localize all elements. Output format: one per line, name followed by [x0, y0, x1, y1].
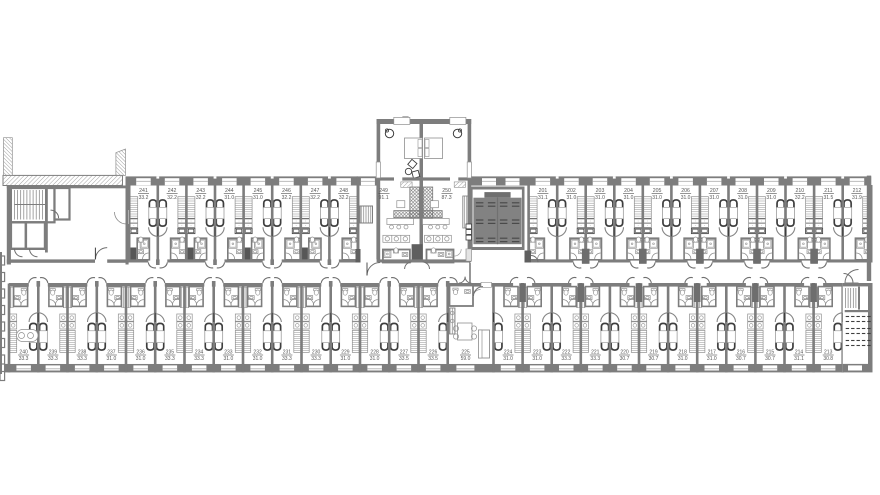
svg-text:91.1: 91.1: [379, 195, 389, 201]
svg-text:33.3: 33.3: [77, 356, 87, 362]
svg-text:222: 222: [562, 350, 571, 356]
svg-text:30.7: 30.7: [736, 356, 746, 362]
svg-text:31.0: 31.0: [652, 195, 662, 201]
svg-text:30.7: 30.7: [649, 356, 659, 362]
svg-text:210: 210: [795, 188, 804, 194]
svg-text:33.3: 33.3: [48, 356, 58, 362]
svg-text:234: 234: [195, 350, 204, 356]
svg-text:215: 215: [766, 350, 775, 356]
svg-text:33.3: 33.3: [19, 356, 29, 362]
svg-text:32.2: 32.2: [167, 195, 177, 201]
svg-text:217: 217: [708, 350, 717, 356]
svg-text:207: 207: [710, 188, 719, 194]
svg-text:31.0: 31.0: [624, 195, 634, 201]
svg-text:204: 204: [624, 188, 633, 194]
svg-text:203: 203: [596, 188, 605, 194]
svg-text:223: 223: [533, 350, 542, 356]
svg-text:232: 232: [253, 350, 262, 356]
svg-text:59.0: 59.0: [461, 356, 471, 362]
svg-text:209: 209: [767, 188, 776, 194]
svg-text:31.0: 31.0: [253, 195, 263, 201]
svg-text:238: 238: [78, 350, 87, 356]
svg-text:30.8: 30.8: [823, 356, 833, 362]
svg-text:31.0: 31.0: [341, 356, 351, 362]
svg-text:248: 248: [339, 188, 348, 194]
svg-text:31.0: 31.0: [707, 356, 717, 362]
svg-text:231: 231: [283, 350, 292, 356]
svg-text:32.2: 32.2: [282, 195, 292, 201]
svg-text:202: 202: [567, 188, 576, 194]
svg-text:30.7: 30.7: [765, 356, 775, 362]
svg-text:32.2: 32.2: [795, 195, 805, 201]
svg-text:31.0: 31.0: [567, 195, 577, 201]
svg-text:243: 243: [196, 188, 205, 194]
svg-text:31.0: 31.0: [136, 356, 146, 362]
svg-text:31.0: 31.0: [678, 356, 688, 362]
svg-text:201: 201: [539, 188, 548, 194]
svg-text:247: 247: [311, 188, 320, 194]
svg-text:229: 229: [341, 350, 350, 356]
svg-text:33.3: 33.3: [165, 356, 175, 362]
svg-text:31.0: 31.0: [766, 195, 776, 201]
svg-text:226: 226: [429, 350, 438, 356]
svg-text:208: 208: [738, 188, 747, 194]
svg-text:244: 244: [225, 188, 234, 194]
svg-text:206: 206: [681, 188, 690, 194]
svg-text:31.9: 31.9: [852, 195, 862, 201]
svg-text:218: 218: [679, 350, 688, 356]
svg-text:227: 227: [400, 350, 409, 356]
svg-text:216: 216: [737, 350, 746, 356]
svg-text:30.7: 30.7: [620, 356, 630, 362]
svg-text:212: 212: [853, 188, 862, 194]
svg-text:31.0: 31.0: [503, 356, 513, 362]
svg-text:31.0: 31.0: [107, 356, 117, 362]
svg-text:33.3: 33.3: [282, 356, 292, 362]
svg-text:235: 235: [166, 350, 175, 356]
svg-text:31.1: 31.1: [538, 195, 548, 201]
svg-text:228: 228: [370, 350, 379, 356]
svg-text:31.0: 31.0: [681, 195, 691, 201]
svg-text:205: 205: [653, 188, 662, 194]
svg-text:246: 246: [282, 188, 291, 194]
svg-text:33.3: 33.3: [311, 356, 321, 362]
svg-text:233: 233: [224, 350, 233, 356]
svg-text:214: 214: [795, 350, 804, 356]
svg-text:31.0: 31.0: [532, 356, 542, 362]
svg-text:240: 240: [19, 350, 28, 356]
svg-text:31.0: 31.0: [224, 195, 234, 201]
svg-text:245: 245: [254, 188, 263, 194]
svg-text:87.3: 87.3: [442, 195, 452, 201]
svg-text:31.0: 31.0: [738, 195, 748, 201]
svg-text:224: 224: [504, 350, 513, 356]
svg-text:236: 236: [136, 350, 145, 356]
svg-text:31.0: 31.0: [709, 195, 719, 201]
svg-text:31.1: 31.1: [794, 356, 804, 362]
svg-text:241: 241: [139, 188, 148, 194]
svg-text:225: 225: [461, 350, 470, 356]
svg-text:220: 220: [620, 350, 629, 356]
svg-text:221: 221: [591, 350, 600, 356]
svg-text:230: 230: [312, 350, 321, 356]
svg-text:32.2: 32.2: [310, 195, 320, 201]
svg-text:211: 211: [824, 188, 832, 194]
svg-text:31.0: 31.0: [595, 195, 605, 201]
svg-text:213: 213: [824, 350, 833, 356]
svg-text:31.0: 31.0: [370, 356, 380, 362]
svg-text:219: 219: [649, 350, 658, 356]
svg-text:33.2: 33.2: [139, 195, 149, 201]
svg-text:31.5: 31.5: [824, 195, 834, 201]
svg-text:33.5: 33.5: [399, 356, 409, 362]
svg-text:239: 239: [49, 350, 58, 356]
svg-text:237: 237: [107, 350, 116, 356]
svg-text:32.2: 32.2: [196, 195, 206, 201]
svg-text:33.5: 33.5: [428, 356, 438, 362]
svg-text:31.0: 31.0: [253, 356, 263, 362]
svg-text:33.3: 33.3: [561, 356, 571, 362]
svg-text:33.3: 33.3: [590, 356, 600, 362]
svg-text:33.3: 33.3: [194, 356, 204, 362]
svg-text:31.0: 31.0: [224, 356, 234, 362]
svg-text:242: 242: [168, 188, 177, 194]
svg-text:32.2: 32.2: [339, 195, 349, 201]
